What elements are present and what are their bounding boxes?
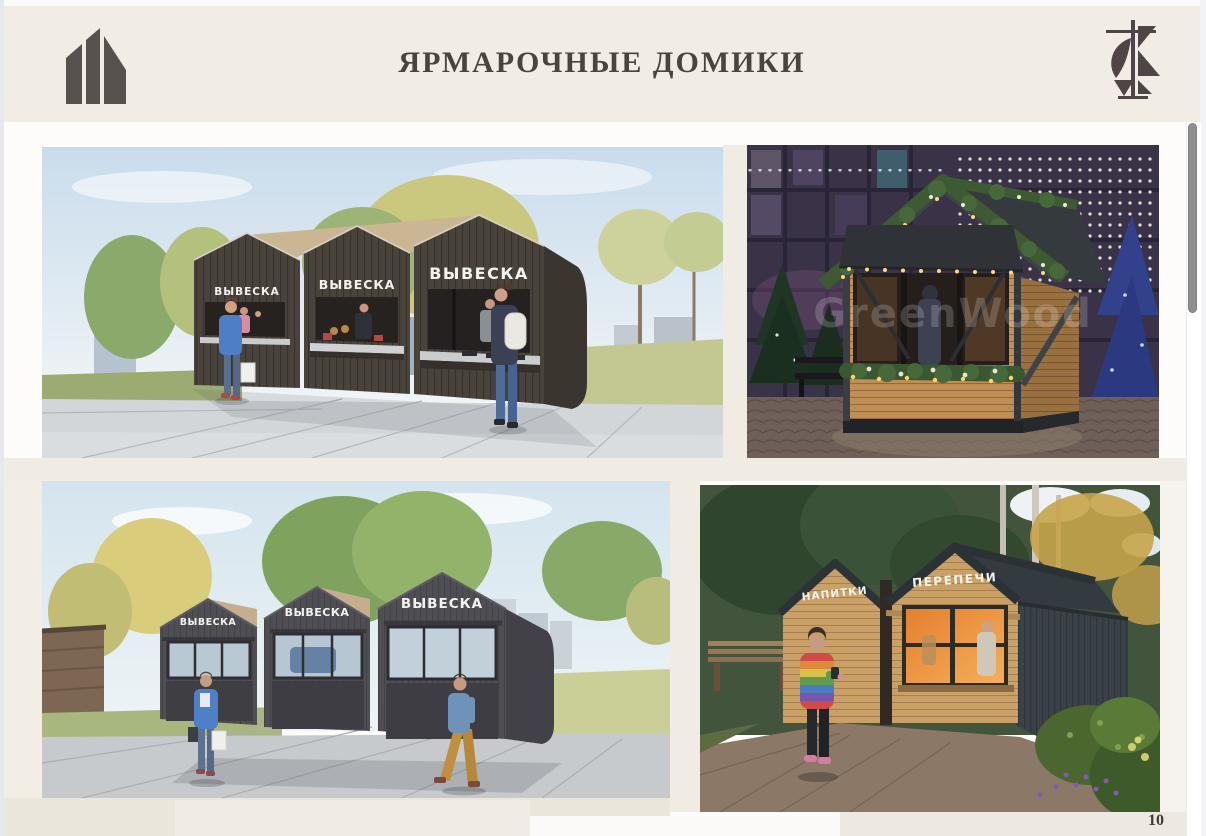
bg-gap-top xyxy=(723,145,747,458)
render-grey-kiosks-day: ВЫВЕСКА ВЫВЕСКА ВЫВЕСКА xyxy=(42,481,670,798)
kiosk-sign-text: ВЫВЕСКА xyxy=(285,606,350,619)
render-garland-kiosk-night: GreenWood xyxy=(747,145,1159,458)
wooden-shed xyxy=(42,627,106,719)
slide-viewer: ЯРМАРОЧНЫЕ ДОМИКИ xyxy=(0,0,1206,836)
bg-bottom-inner xyxy=(175,800,530,836)
kiosk-sign-text: ВЫВЕСКА xyxy=(401,596,483,612)
bg-band-middle xyxy=(4,458,1186,481)
render-fair-stalls-open: ВЫВЕСКА ВЫВЕСКА ВЫВЕСКА xyxy=(42,147,723,458)
kiosk-sign-text: ВЫВЕСКА xyxy=(429,264,529,283)
scrollbar-thumb[interactable] xyxy=(1188,123,1197,313)
bg-bottom-mid xyxy=(530,816,840,836)
kiosk-sign-text: ВЫВЕСКА xyxy=(180,617,237,628)
page-title: ЯРМАРОЧНЫЕ ДОМИКИ xyxy=(4,46,1200,80)
bg-left-margin xyxy=(4,481,42,812)
bg-gap-bottom xyxy=(670,481,700,812)
watermark-text: GreenWood xyxy=(813,291,1093,337)
kiosk-sign-text: ВЫВЕСКА xyxy=(319,277,396,292)
render-wooden-kiosks-park: НАПИТКИ ПЕРЕПЕЧИ xyxy=(700,485,1160,812)
garland-lights-string xyxy=(747,169,947,178)
bg-right-margin xyxy=(1160,481,1186,812)
kiosk-sign-text: ВЫВЕСКА xyxy=(214,286,279,298)
emblem-logo-icon xyxy=(1098,16,1170,108)
page-number: 10 xyxy=(1128,812,1184,830)
